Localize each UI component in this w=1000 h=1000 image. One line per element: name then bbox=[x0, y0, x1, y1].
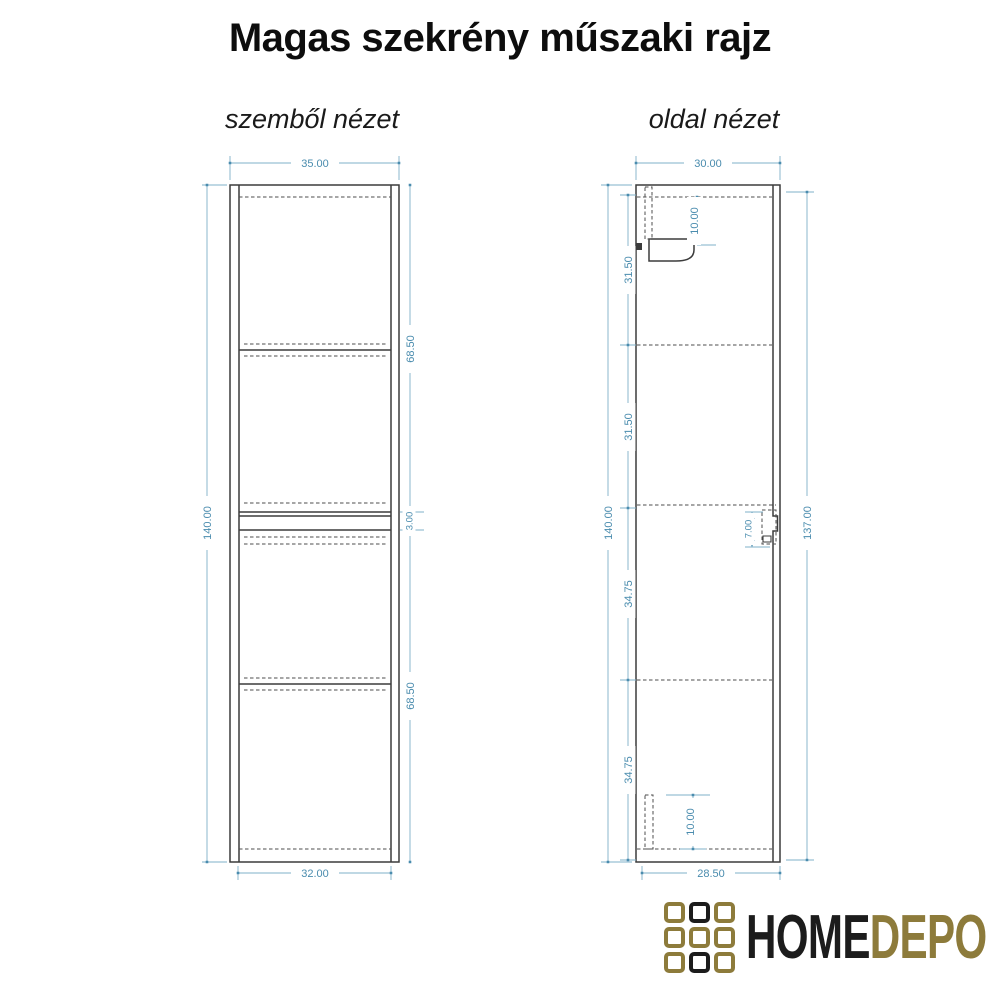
dim-side-top-width: 30.00 bbox=[694, 158, 722, 170]
logo-grid-square bbox=[714, 902, 735, 923]
front-view-hidden-lines bbox=[239, 197, 391, 849]
dim-front-upper-section: 68.50 bbox=[403, 325, 418, 373]
dim-side-bottom-bracket-text: 10.00 bbox=[685, 808, 697, 836]
dimension-line-work bbox=[202, 156, 814, 880]
logo-grid-square bbox=[714, 952, 735, 973]
dim-side-height-text: 140.00 bbox=[603, 506, 615, 540]
dim-side-segment-4: 34.75 bbox=[621, 746, 636, 794]
dim-side-seg4-text: 34.75 bbox=[623, 756, 635, 784]
dimension-dots bbox=[206, 162, 809, 875]
dim-side-height: 140.00 bbox=[601, 496, 616, 550]
side-view-outline bbox=[636, 185, 780, 862]
side-view-drawing bbox=[636, 185, 780, 862]
dim-side-seg1-text: 31.50 bbox=[623, 256, 635, 284]
logo-text-home: HOME bbox=[746, 903, 870, 972]
dim-side-segment-3: 34.75 bbox=[621, 570, 636, 618]
front-view-drawing bbox=[230, 185, 399, 862]
dimension-arrows bbox=[694, 238, 755, 547]
dim-side-middle-bracket: 7.00 bbox=[742, 513, 755, 545]
dim-side-top-bracket-text: 10.00 bbox=[689, 207, 701, 235]
side-view-bracket-detail bbox=[763, 536, 771, 542]
logo-grid-square bbox=[689, 952, 710, 973]
dim-front-gap-text: 3.00 bbox=[405, 512, 416, 531]
logo-grid-square bbox=[664, 902, 685, 923]
dimension-labels: 35.00 32.00 30.00 28.50 140.00 68.50 bbox=[200, 156, 815, 880]
logo-grid-square bbox=[689, 902, 710, 923]
logo-grid-square bbox=[664, 927, 685, 948]
dim-side-right-height: 137.00 bbox=[800, 496, 815, 550]
logo-text-depo: DEPO bbox=[870, 903, 987, 972]
dim-side-seg2-text: 31.50 bbox=[623, 413, 635, 441]
dim-front-bottom-width: 32.00 bbox=[301, 868, 329, 880]
dim-front-middle-gap: 3.00 bbox=[403, 506, 416, 536]
logo-grid-icon bbox=[664, 902, 735, 973]
front-view-outline bbox=[230, 185, 399, 862]
dimension-lines bbox=[202, 156, 814, 880]
side-view-hidden-lines bbox=[637, 187, 776, 849]
side-view-wall-mark bbox=[636, 243, 642, 250]
technical-drawing-canvas: 35.00 32.00 30.00 28.50 140.00 68.50 bbox=[0, 0, 1000, 1000]
dim-front-height-text: 140.00 bbox=[202, 506, 214, 540]
homedepo-logo: HOMEDEPO bbox=[664, 902, 1000, 973]
dim-front-lower-text: 68.50 bbox=[405, 682, 417, 710]
dim-side-right-height-text: 137.00 bbox=[802, 506, 814, 540]
dim-side-bottom-bracket: 10.00 bbox=[683, 798, 697, 846]
logo-grid-square bbox=[689, 927, 710, 948]
dim-front-top-width: 35.00 bbox=[301, 158, 329, 170]
dim-side-segment-1: 31.50 bbox=[621, 246, 636, 294]
dim-side-seg3-text: 34.75 bbox=[623, 580, 635, 608]
dim-side-middle-bracket-text: 7.00 bbox=[744, 520, 755, 539]
logo-grid-square bbox=[714, 927, 735, 948]
technical-drawing-page: Magas szekrény műszaki rajz szemből néze… bbox=[0, 0, 1000, 1000]
dim-front-height: 140.00 bbox=[200, 496, 215, 550]
dim-side-segment-2: 31.50 bbox=[621, 403, 636, 451]
logo-text: HOMEDEPO bbox=[746, 907, 987, 969]
dim-side-bottom-width: 28.50 bbox=[697, 868, 725, 880]
dim-front-upper-text: 68.50 bbox=[405, 335, 417, 363]
dim-front-lower-section: 68.50 bbox=[403, 672, 418, 720]
logo-grid-square bbox=[664, 952, 685, 973]
dim-side-top-bracket: 10.00 bbox=[687, 197, 701, 245]
